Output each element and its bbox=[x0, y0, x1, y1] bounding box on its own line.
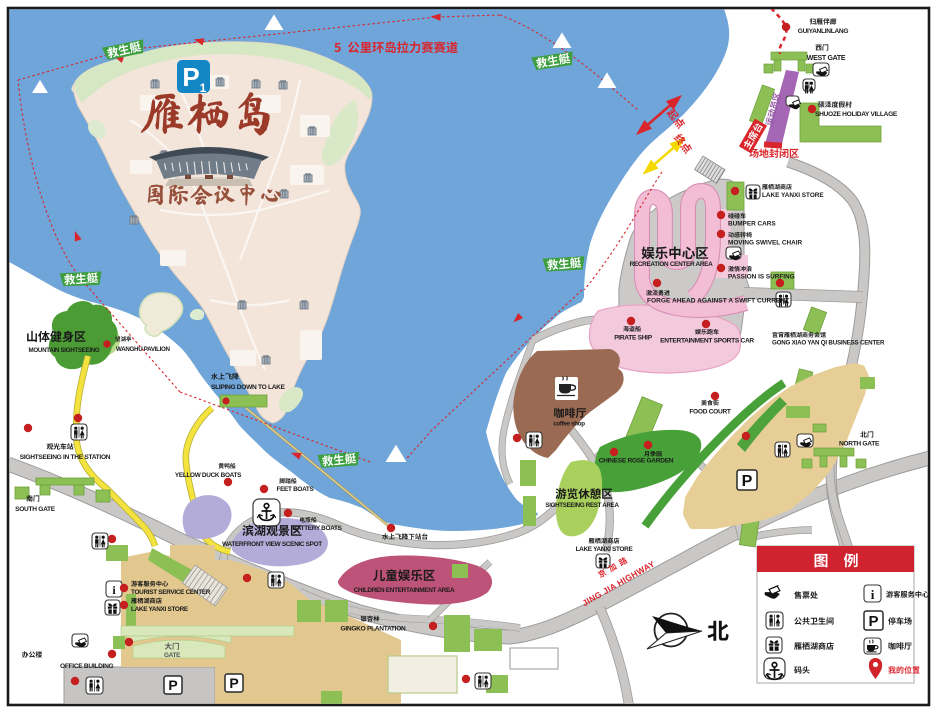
svg-text:CHILDREN ENTERTAINMENT AREA: CHILDREN ENTERTAINMENT AREA bbox=[354, 587, 455, 594]
svg-text:ENTERTAINMENT SPORTS CAR: ENTERTAINMENT SPORTS CAR bbox=[660, 338, 754, 345]
svg-text:SOUTH GATE: SOUTH GATE bbox=[15, 506, 56, 513]
svg-text:SIGHTSEEING IN THE STATION: SIGHTSEEING IN THE STATION bbox=[20, 454, 111, 461]
svg-text:P: P bbox=[182, 62, 199, 92]
svg-text:P: P bbox=[168, 677, 177, 693]
svg-text:CHINESE ROSE GARDEN: CHINESE ROSE GARDEN bbox=[599, 458, 674, 465]
svg-text:LAKE YANXI STORE: LAKE YANXI STORE bbox=[576, 546, 634, 553]
svg-text:PASSION IS SURFING: PASSION IS SURFING bbox=[728, 274, 795, 281]
svg-text:WEST GATE: WEST GATE bbox=[807, 55, 846, 62]
svg-text:RECREATION CENTER AREA: RECREATION CENTER AREA bbox=[630, 261, 714, 268]
svg-text:i: i bbox=[871, 587, 875, 602]
svg-text:WATERFRONT VIEW SCENIC SPOT: WATERFRONT VIEW SCENIC SPOT bbox=[222, 541, 322, 548]
svg-text:TOURIST SERVICE CENTER: TOURIST SERVICE CENTER bbox=[131, 589, 211, 596]
svg-text:GINGKO PLANTATION: GINGKO PLANTATION bbox=[341, 626, 407, 633]
svg-text:P: P bbox=[229, 675, 238, 691]
svg-text:PIRATE SHIP: PIRATE SHIP bbox=[614, 335, 653, 342]
svg-text:BUMPER CARS: BUMPER CARS bbox=[728, 221, 776, 228]
svg-text:LAKE YANXI STORE: LAKE YANXI STORE bbox=[762, 192, 824, 199]
svg-text:FOOD COURT: FOOD COURT bbox=[689, 409, 731, 416]
svg-text:NORTH GATE: NORTH GATE bbox=[839, 441, 880, 448]
svg-text:GATE: GATE bbox=[164, 652, 181, 659]
svg-text:GUIYANLINLANG: GUIYANLINLANG bbox=[798, 28, 849, 35]
svg-text:OFFICE BUILDING: OFFICE BUILDING bbox=[60, 663, 114, 670]
svg-text:SIGHTSEEING REST AREA: SIGHTSEEING REST AREA bbox=[545, 502, 619, 509]
svg-text:1: 1 bbox=[200, 81, 207, 95]
svg-text:MOUNTAIN SIGHTSEEING: MOUNTAIN SIGHTSEEING bbox=[29, 347, 100, 354]
svg-text:coffee shop: coffee shop bbox=[553, 421, 585, 428]
svg-text:SHUOZE HOLIDAY VILLAGE: SHUOZE HOLIDAY VILLAGE bbox=[815, 111, 898, 118]
svg-text:FEET BOATS: FEET BOATS bbox=[276, 486, 314, 493]
svg-text:MOVING SWIVEL CHAIR: MOVING SWIVEL CHAIR bbox=[728, 240, 802, 247]
svg-text:YELLOW DUCK BOATS: YELLOW DUCK BOATS bbox=[175, 472, 242, 479]
svg-text:GONG XIAO YAN QI BUSINESS CENT: GONG XIAO YAN QI BUSINESS CENTER bbox=[772, 340, 885, 347]
svg-text:WANGHU PAVILION: WANGHU PAVILION bbox=[116, 346, 171, 353]
svg-text:LAKE YANXI STORE: LAKE YANXI STORE bbox=[131, 606, 189, 613]
svg-text:FORGE AHEAD AGAINST A SWIFT CU: FORGE AHEAD AGAINST A SWIFT CURRENT bbox=[647, 298, 789, 305]
svg-text:P: P bbox=[868, 613, 878, 630]
svg-text:P: P bbox=[742, 473, 753, 490]
svg-text:SLIPING DOWN TO LAKE: SLIPING DOWN TO LAKE bbox=[211, 384, 286, 391]
